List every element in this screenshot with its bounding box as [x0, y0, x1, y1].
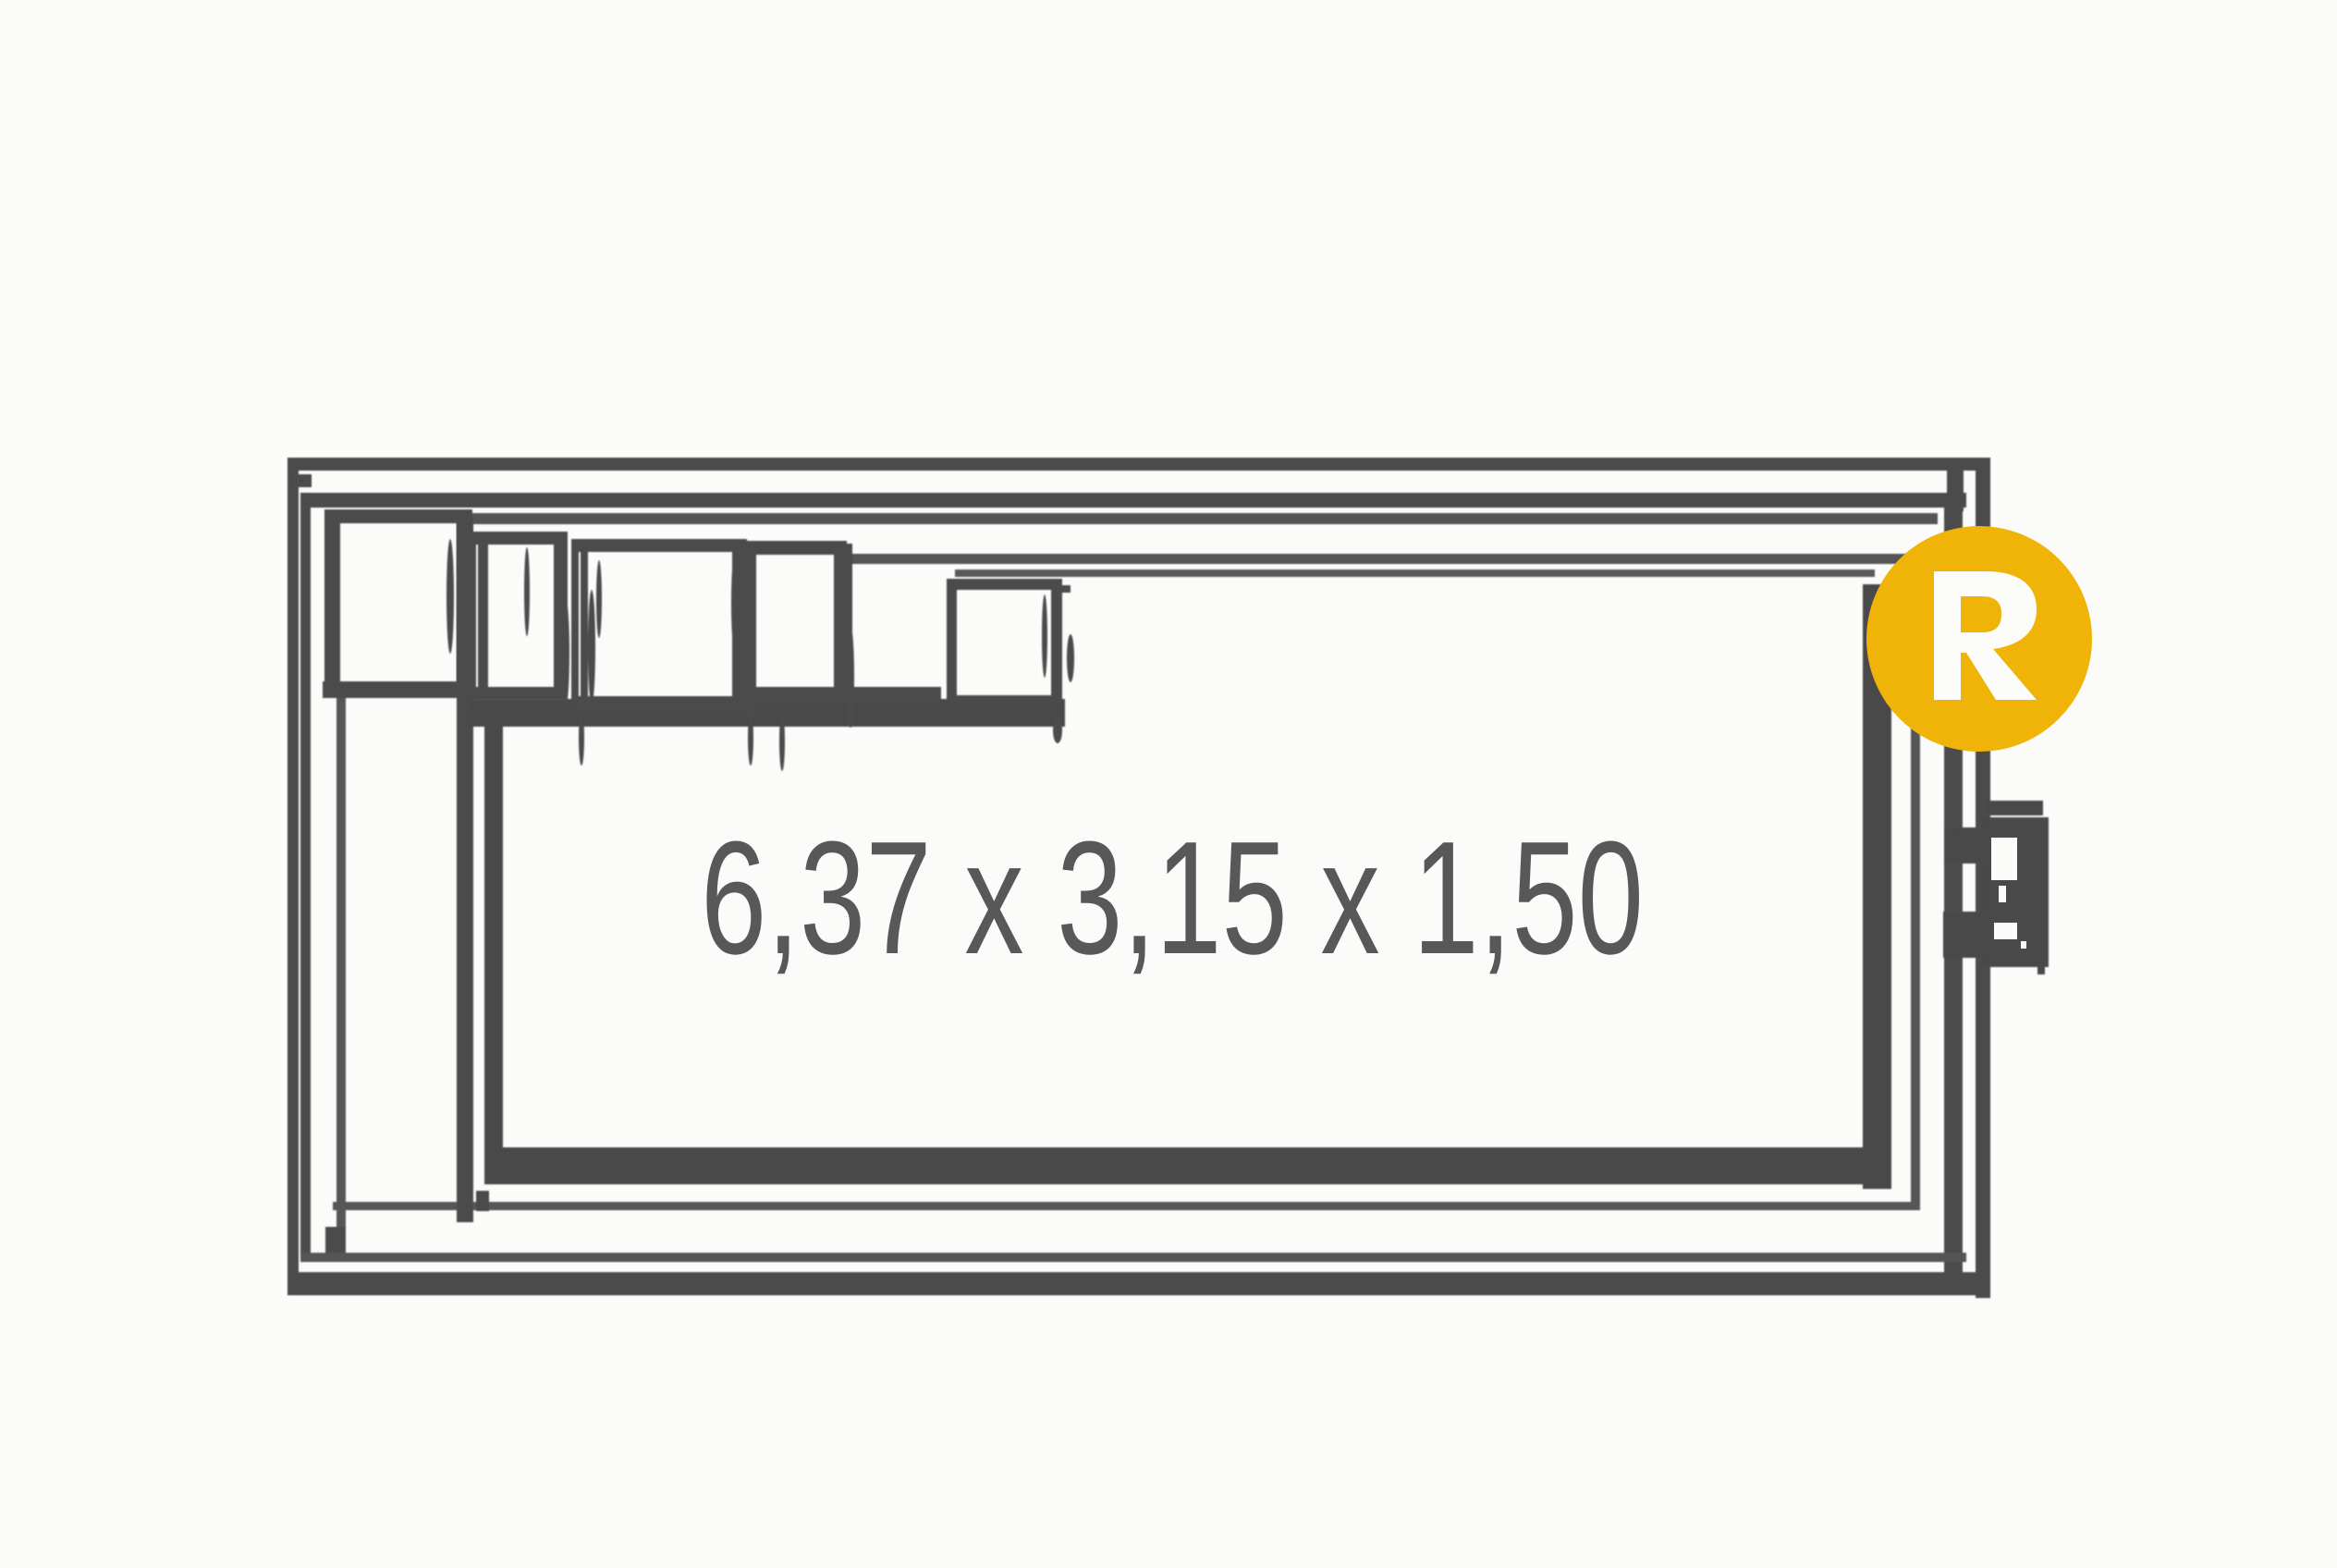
svg-text:6,37 x 3,15 x 1,50: 6,37 x 3,15 x 1,50 [701, 807, 1644, 987]
